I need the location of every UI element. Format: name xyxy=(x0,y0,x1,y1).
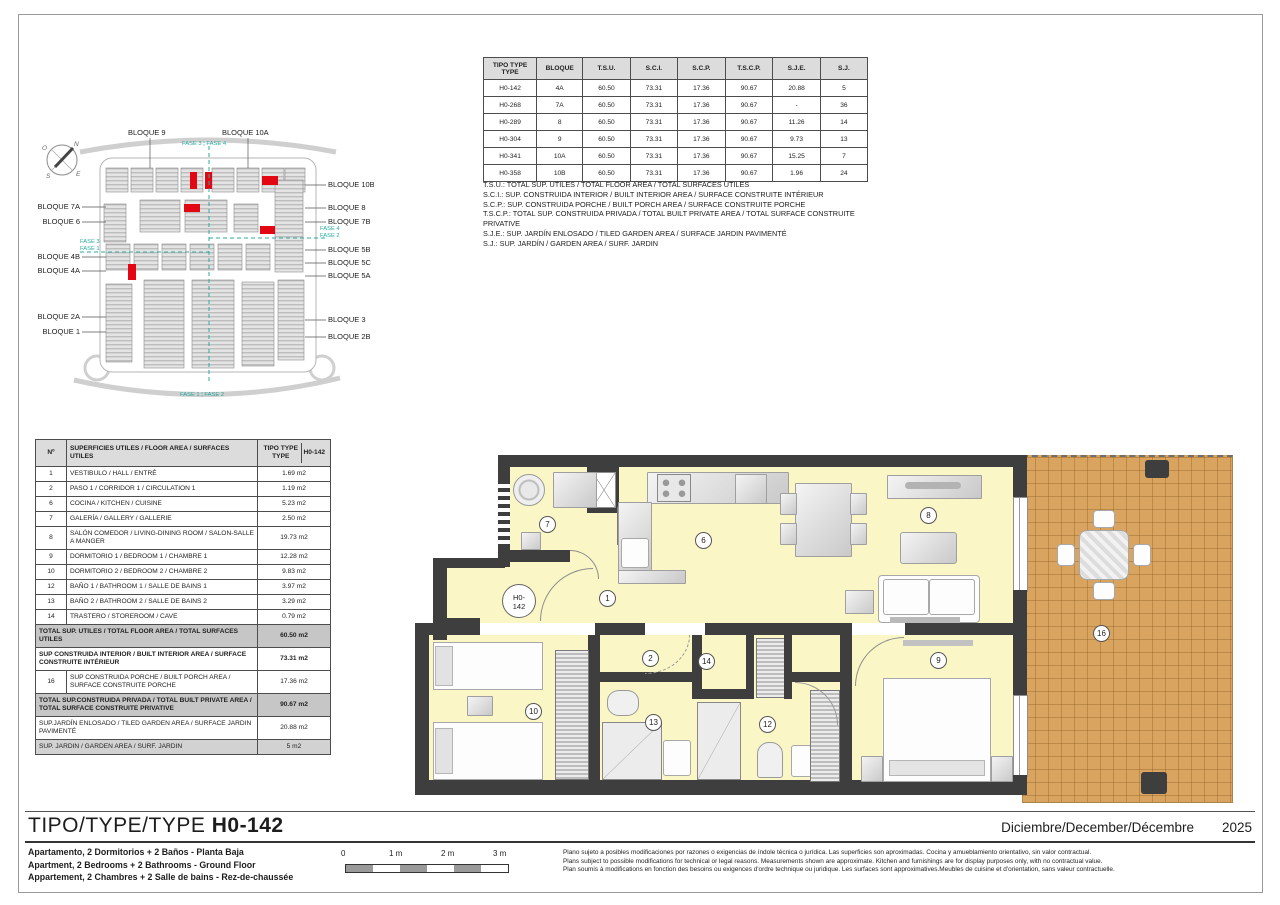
label-bloque-10a: BLOQUE 10A xyxy=(222,128,269,137)
footer-rule-top xyxy=(25,811,1255,812)
area-row: SUP.JARDÍN ENLOSADO / TILED GARDEN AREA … xyxy=(36,717,331,740)
wall xyxy=(746,635,754,699)
sheet-title: TIPO/TYPE/TYPE H0-142 xyxy=(28,814,284,838)
scale-1m: 1 m xyxy=(389,849,402,858)
shelf xyxy=(903,640,973,646)
scale-2m: 2 m xyxy=(441,849,454,858)
pillow xyxy=(435,728,453,774)
label-bloque-7a: BLOQUE 7A xyxy=(37,202,80,211)
abbr-tsu: T.S.U.: TOTAL SUP. UTILES / TOTAL FLOOR … xyxy=(483,180,881,190)
types-col-header: T.S.C.P. xyxy=(725,58,773,80)
abbr-tscp: T.S.C.P.: TOTAL SUP. CONSTRUIDA PRIVADA … xyxy=(483,209,881,229)
terrace-sliding-door xyxy=(1013,497,1028,592)
bedroom1-window xyxy=(1013,695,1028,777)
area-value: 9.83 m2 xyxy=(258,565,331,580)
types-cell: 90.67 xyxy=(725,148,773,165)
label-bloque-1: BLOQUE 1 xyxy=(42,327,80,336)
types-cell: 73.31 xyxy=(630,131,677,148)
types-cell: H0-358 xyxy=(484,165,537,182)
area-row: 13BAÑO 2 / BATHROOM 2 / SALLE DE BAINS 2… xyxy=(36,595,331,610)
area-num: 9 xyxy=(36,550,67,565)
area-row: SUP CONSTRUIDA INTERIOR / BUILT INTERIOR… xyxy=(36,648,331,671)
areas-header-tipo: TIPO TYPE TYPE xyxy=(261,443,302,463)
disclaimer-en: Plans subject to possible modifications … xyxy=(563,858,1255,867)
area-num: 12 xyxy=(36,580,67,595)
types-col-header: S.J.E. xyxy=(773,58,820,80)
area-desc: GALERÍA / GALLERY / GALLERIE xyxy=(67,512,258,527)
label-bloque-4a: BLOQUE 4A xyxy=(37,266,80,275)
area-num: 2 xyxy=(36,482,67,497)
room-label-14: 14 xyxy=(698,653,715,670)
types-cell: 17.36 xyxy=(678,148,725,165)
washing-machine xyxy=(513,474,545,506)
areas-header-desc: SUPERFICIES UTILES / FLOOR AREA / SURFAC… xyxy=(67,440,258,467)
area-value: 5.23 m2 xyxy=(258,497,331,512)
room-label-2: 2 xyxy=(642,650,659,667)
area-value: 17.36 m2 xyxy=(258,671,331,694)
label-bloque-8: BLOQUE 8 xyxy=(328,203,366,212)
types-row: H0-2687A60.5073.3117.3690.67-36 xyxy=(484,97,868,114)
toilet xyxy=(607,690,639,716)
unit-id-circle: H0- 142 xyxy=(502,584,536,618)
area-num: 13 xyxy=(36,595,67,610)
types-row: H0-1424A60.5073.3117.3690.6720.885 xyxy=(484,80,868,97)
label-fase-left-2: FASE 1 xyxy=(80,246,100,252)
types-cell: 24 xyxy=(820,165,867,182)
area-row: 7GALERÍA / GALLERY / GALLERIE2.50 m2 xyxy=(36,512,331,527)
compass-e: E xyxy=(76,171,81,178)
types-cell: 60.50 xyxy=(583,148,630,165)
label-bloque-2b: BLOQUE 2B xyxy=(328,332,371,341)
subtitle-en: Apartment, 2 Bedrooms + 2 Bathrooms - Gr… xyxy=(28,859,293,872)
types-cell: H0-268 xyxy=(484,97,537,114)
area-desc: SUP.JARDÍN ENLOSADO / TILED GARDEN AREA … xyxy=(36,717,258,740)
area-desc: TOTAL SUP. UTILES / TOTAL FLOOR AREA / T… xyxy=(36,625,258,648)
label-bloque-10b: BLOQUE 10B xyxy=(328,180,374,189)
types-cell: 13 xyxy=(820,131,867,148)
label-fase-top: FASE 3 ¦ FASE 4 xyxy=(182,141,227,147)
types-cell: 15.25 xyxy=(773,148,820,165)
unit-id-line1: H0- xyxy=(503,593,535,602)
area-value: 2.50 m2 xyxy=(258,512,331,527)
dining-chair xyxy=(850,493,867,515)
area-value: 3.97 m2 xyxy=(258,580,331,595)
disclaimer-fr: Plan soumis à modifications en fonction … xyxy=(563,866,1255,875)
area-row: 14TRASTERO / STOREROOM / CAVE0.79 m2 xyxy=(36,610,331,625)
scale-0: 0 xyxy=(341,849,345,858)
types-col-header: S.C.I. xyxy=(630,58,677,80)
area-desc: TOTAL SUP.CONSTRUIDA PRIVADA / TOTAL BUI… xyxy=(36,694,258,717)
types-cell: 60.50 xyxy=(583,131,630,148)
scale-3m: 3 m xyxy=(493,849,506,858)
plan-sheet: N O S E BLOQUE 9 BLOQUE 10A BLOQUE 7A BL… xyxy=(0,0,1280,905)
area-desc: COCINA / KITCHEN / CUISINE xyxy=(67,497,258,512)
room-label-16: 16 xyxy=(1093,625,1110,642)
room-label-9: 9 xyxy=(930,652,947,669)
types-col-header: T.S.U. xyxy=(583,58,630,80)
area-num: 14 xyxy=(36,610,67,625)
area-row: 12BAÑO 1 / BATHROOM 1 / SALLE DE BAINS 1… xyxy=(36,580,331,595)
types-cell: 17.36 xyxy=(678,131,725,148)
types-cell: 7 xyxy=(820,148,867,165)
types-col-header: TIPO TYPE TYPE xyxy=(484,58,537,80)
shower xyxy=(697,702,741,780)
nightstand xyxy=(991,756,1013,782)
area-value: 73.31 m2 xyxy=(258,648,331,671)
kitchen-sink xyxy=(621,538,649,568)
abbr-scp: S.C.P.: SUP. CONSTRUIDA PORCHE / BUILT P… xyxy=(483,200,881,210)
unit-id-line2: 142 xyxy=(503,602,535,611)
types-cell: 60.50 xyxy=(583,80,630,97)
types-cell: 60.50 xyxy=(583,114,630,131)
nightstand xyxy=(467,696,493,716)
types-cell: 7A xyxy=(537,97,583,114)
label-bloque-2a: BLOQUE 2A xyxy=(37,312,80,321)
tv-unit xyxy=(890,617,960,623)
area-desc: DORMITORIO 2 / BEDROOM 2 / CHAMBRE 2 xyxy=(67,565,258,580)
area-desc: VESTIBULO / HALL / ENTRÉ xyxy=(67,467,258,482)
types-cell: 90.67 xyxy=(725,80,773,97)
dining-chair xyxy=(850,523,867,545)
kitchen-counter-low xyxy=(618,570,686,584)
area-value: 60.50 m2 xyxy=(258,625,331,648)
wall xyxy=(840,635,852,795)
galeria-sink xyxy=(521,532,541,550)
label-bloque-7b: BLOQUE 7B xyxy=(328,217,371,226)
terrace-chair xyxy=(1093,510,1115,528)
types-cell: 9 xyxy=(537,131,583,148)
area-desc: BAÑO 2 / BATHROOM 2 / SALLE DE BAINS 2 xyxy=(67,595,258,610)
types-cell: 36 xyxy=(820,97,867,114)
wall xyxy=(1013,775,1027,795)
dining-chair xyxy=(780,493,797,515)
area-num: 8 xyxy=(36,527,67,550)
compass-s: S xyxy=(46,173,51,180)
area-num: 7 xyxy=(36,512,67,527)
types-cell: 11.26 xyxy=(773,114,820,131)
area-row: 16SUP CONSTRUIDA PORCHE / BUILT PORCH AR… xyxy=(36,671,331,694)
area-desc: TRASTERO / STOREROOM / CAVE xyxy=(67,610,258,625)
types-row: H0-304960.5073.3117.3690.679.7313 xyxy=(484,131,868,148)
types-cell: 73.31 xyxy=(630,165,677,182)
types-cell: 17.36 xyxy=(678,80,725,97)
room-label-8: 8 xyxy=(920,507,937,524)
wall xyxy=(1013,590,1027,695)
title-prefix: TIPO/TYPE/TYPE xyxy=(28,814,205,837)
area-value: 1.69 m2 xyxy=(258,467,331,482)
types-col-header: S.C.P. xyxy=(678,58,725,80)
wall xyxy=(905,623,1013,635)
nightstand xyxy=(861,756,883,782)
label-bloque-9: BLOQUE 9 xyxy=(128,128,166,137)
room-entry-hall xyxy=(447,568,507,623)
types-col-header: BLOQUE xyxy=(537,58,583,80)
area-value: 90.67 m2 xyxy=(258,694,331,717)
terrace-chair xyxy=(1093,582,1115,600)
room-label-1: 1 xyxy=(599,590,616,607)
wall xyxy=(415,780,1027,795)
area-row: 2PASO 1 / CORRIDOR 1 / CIRCULATION 11.19… xyxy=(36,482,331,497)
area-row: 6COCINA / KITCHEN / CUISINE5.23 m2 xyxy=(36,497,331,512)
floor-plan: 1 2 6 7 8 9 10 12 13 14 16 H0- 142 xyxy=(405,450,1235,805)
terrace-pillar-top xyxy=(1145,460,1169,478)
abbr-sje: S.J.E.: SUP. JARDÍN ENLOSADO / TILED GAR… xyxy=(483,229,881,239)
area-row: SUP. JARDIN / GARDEN AREA / SURF. JARDIN… xyxy=(36,740,331,755)
types-cell: - xyxy=(773,97,820,114)
dining-chair xyxy=(780,523,797,545)
area-row: 8SALÓN COMEDOR / LIVING-DINING ROOM / SA… xyxy=(36,527,331,550)
area-desc: SUP CONSTRUIDA PORCHE / BUILT PORCH AREA… xyxy=(67,671,258,694)
terrace-chair xyxy=(1133,544,1151,566)
wall xyxy=(498,550,570,562)
footer-rule-mid xyxy=(25,841,1255,843)
types-cell: 73.31 xyxy=(630,114,677,131)
types-cell: 9.73 xyxy=(773,131,820,148)
label-bloque-5a: BLOQUE 5A xyxy=(328,271,371,280)
wall xyxy=(692,689,754,699)
area-desc: SUP. JARDIN / GARDEN AREA / SURF. JARDIN xyxy=(36,740,258,755)
types-cell: 17.36 xyxy=(678,97,725,114)
terrace xyxy=(1022,455,1233,803)
compass-o: O xyxy=(42,145,47,152)
label-bloque-5c: BLOQUE 5C xyxy=(328,258,372,267)
room-label-10: 10 xyxy=(525,703,542,720)
types-row: H0-35810B60.5073.3117.3690.671.9624 xyxy=(484,165,868,182)
wall xyxy=(784,635,792,699)
area-value: 0.79 m2 xyxy=(258,610,331,625)
wall xyxy=(1013,455,1027,497)
area-value: 12.28 m2 xyxy=(258,550,331,565)
types-cell: H0-304 xyxy=(484,131,537,148)
bathroom-sink xyxy=(663,740,691,776)
abbr-sj: S.J.: SUP. JARDÍN / GARDEN AREA / SURF. … xyxy=(483,239,881,249)
types-cell: 73.31 xyxy=(630,148,677,165)
types-col-header: S.J. xyxy=(820,58,867,80)
types-cell: 10A xyxy=(537,148,583,165)
disclaimer-es: Plano sujeto a posibles modificaciones p… xyxy=(563,849,1255,858)
types-cell: 17.36 xyxy=(678,114,725,131)
types-cell: 5 xyxy=(820,80,867,97)
area-num: 10 xyxy=(36,565,67,580)
area-value: 3.29 m2 xyxy=(258,595,331,610)
area-value: 19.73 m2 xyxy=(258,527,331,550)
types-cell: 73.31 xyxy=(630,97,677,114)
area-row: 10DORMITORIO 2 / BEDROOM 2 / CHAMBRE 29.… xyxy=(36,565,331,580)
area-row: 1VESTIBULO / HALL / ENTRÉ1.69 m2 xyxy=(36,467,331,482)
wall xyxy=(447,558,505,568)
stove xyxy=(657,474,691,502)
types-row: H0-289860.5073.3117.3690.6711.2614 xyxy=(484,114,868,131)
terrace-pillar-bottom xyxy=(1141,772,1167,794)
areas-table: Nº SUPERFICIES UTILES / FLOOR AREA / SUR… xyxy=(35,439,331,755)
types-cell: H0-142 xyxy=(484,80,537,97)
scale-bar xyxy=(345,864,509,873)
date-year: 2025 xyxy=(1222,820,1252,835)
label-fase-right-1: FASE 4 xyxy=(320,226,340,232)
areas-header-type: TIPO TYPE TYPE H0-142 xyxy=(258,440,331,467)
areas-header-code: H0-142 xyxy=(302,443,327,463)
area-num: 1 xyxy=(36,467,67,482)
label-bloque-4b: BLOQUE 4B xyxy=(37,252,80,261)
area-desc: PASO 1 / CORRIDOR 1 / CIRCULATION 1 xyxy=(67,482,258,497)
date-words: Diciembre/December/Décembre xyxy=(1001,820,1194,835)
wall xyxy=(792,672,840,682)
types-cell: 90.67 xyxy=(725,97,773,114)
types-cell: 20.88 xyxy=(773,80,820,97)
label-bloque-5b: BLOQUE 5B xyxy=(328,245,371,254)
area-row: 9DORMITORIO 1 / BEDROOM 1 / CHAMBRE 112.… xyxy=(36,550,331,565)
sofa-cushion xyxy=(883,579,929,615)
area-desc: BAÑO 1 / BATHROOM 1 / SALLE DE BAINS 1 xyxy=(67,580,258,595)
wall xyxy=(595,623,645,635)
types-cell: 14 xyxy=(820,114,867,131)
terrace-table xyxy=(1079,530,1129,580)
subtitle-es: Apartamento, 2 Dormitorios + 2 Baños - P… xyxy=(28,846,293,859)
area-value: 1.19 m2 xyxy=(258,482,331,497)
label-fase-bottom: FASE 1 ¦ FASE 2 xyxy=(180,392,224,398)
area-value: 5 m2 xyxy=(258,740,331,755)
area-desc: SUP CONSTRUIDA INTERIOR / BUILT INTERIOR… xyxy=(36,648,258,671)
area-desc: DORMITORIO 1 / BEDROOM 1 / CHAMBRE 1 xyxy=(67,550,258,565)
types-table-header: TIPO TYPE TYPEBLOQUET.S.U.S.C.I.S.C.P.T.… xyxy=(484,58,868,80)
abbreviations-legend: T.S.U.: TOTAL SUP. UTILES / TOTAL FLOOR … xyxy=(483,180,881,249)
pillow xyxy=(889,760,985,776)
areas-table-header: Nº SUPERFICIES UTILES / FLOOR AREA / SUR… xyxy=(36,440,331,467)
fridge xyxy=(735,474,767,504)
wall xyxy=(500,455,1027,467)
label-bloque-3: BLOQUE 3 xyxy=(328,315,366,324)
hall-wardrobe xyxy=(756,638,786,698)
unit-subtitles: Apartamento, 2 Dormitorios + 2 Baños - P… xyxy=(28,846,293,884)
types-row: H0-34110A60.5073.3117.3690.6715.257 xyxy=(484,148,868,165)
terrace-chair xyxy=(1057,544,1075,566)
room-label-12: 12 xyxy=(759,716,776,733)
date-row: Diciembre/December/Décembre 2025 xyxy=(1001,820,1252,835)
types-cell: 4A xyxy=(537,80,583,97)
coffee-table xyxy=(900,532,957,564)
galeria-counter xyxy=(553,472,597,508)
label-fase-right-2: FASE 2 xyxy=(320,233,340,239)
compass-n: N xyxy=(74,141,79,148)
types-cell: 60.50 xyxy=(583,97,630,114)
room-label-13: 13 xyxy=(645,714,662,731)
types-cell: 90.67 xyxy=(725,131,773,148)
types-cell: H0-289 xyxy=(484,114,537,131)
wall xyxy=(415,623,480,635)
bedroom2-wardrobe xyxy=(555,650,589,780)
area-num: 16 xyxy=(36,671,67,694)
wall-vent-hatch xyxy=(498,484,510,546)
label-bloque-6: BLOQUE 6 xyxy=(42,217,80,226)
area-row: TOTAL SUP. UTILES / TOTAL FLOOR AREA / T… xyxy=(36,625,331,648)
types-cell: 17.36 xyxy=(678,165,725,182)
label-fase-left-1: FASE 3 xyxy=(80,239,100,245)
area-desc: SALÓN COMEDOR / LIVING-DINING ROOM / SAL… xyxy=(67,527,258,550)
room-label-6: 6 xyxy=(695,532,712,549)
area-num: 6 xyxy=(36,497,67,512)
toilet xyxy=(757,742,783,778)
pillow xyxy=(435,646,453,686)
types-cell: 60.50 xyxy=(583,165,630,182)
area-row: TOTAL SUP.CONSTRUIDA PRIVADA / TOTAL BUI… xyxy=(36,694,331,717)
room-label-7: 7 xyxy=(539,516,556,533)
areas-header-num: Nº xyxy=(36,440,67,467)
types-table: TIPO TYPE TYPEBLOQUET.S.U.S.C.I.S.C.P.T.… xyxy=(483,57,868,182)
types-cell: 1.96 xyxy=(773,165,820,182)
wall xyxy=(588,635,600,795)
wall xyxy=(705,623,852,635)
wall xyxy=(415,623,429,795)
sideboard-handle xyxy=(905,482,961,489)
side-table xyxy=(845,590,874,614)
types-cell: 8 xyxy=(537,114,583,131)
types-cell: 73.31 xyxy=(630,80,677,97)
compass-rose: N O S E xyxy=(42,141,81,180)
subtitle-fr: Appartement, 2 Chambres + 2 Salle de bai… xyxy=(28,871,293,884)
types-cell: H0-341 xyxy=(484,148,537,165)
abbr-sci: S.C.I.: SUP. CONSTRUIDA INTERIOR / BUILT… xyxy=(483,190,881,200)
dining-table xyxy=(795,483,852,557)
types-cell: 90.67 xyxy=(725,165,773,182)
types-cell: 90.67 xyxy=(725,114,773,131)
disclaimer: Plano sujeto a posibles modificaciones p… xyxy=(563,849,1255,875)
types-cell: 10B xyxy=(537,165,583,182)
area-value: 20.88 m2 xyxy=(258,717,331,740)
title-code: H0-142 xyxy=(212,814,284,837)
site-plan: N O S E BLOQUE 9 BLOQUE 10A BLOQUE 7A BL… xyxy=(22,112,374,418)
sofa-cushion xyxy=(929,579,975,615)
